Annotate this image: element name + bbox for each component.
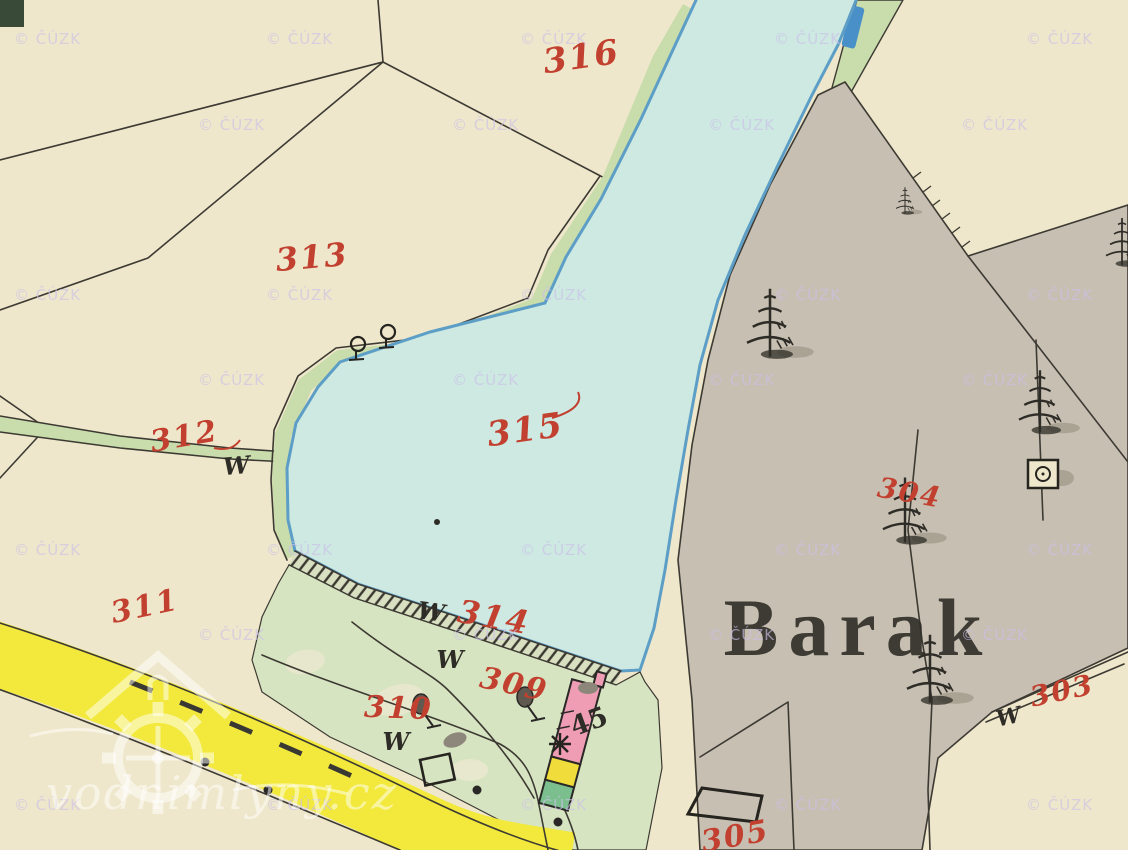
map-viewport[interactable]: Barak 316 313 312 311 315 314 309 310 30… <box>0 0 1128 850</box>
meadow-mark: W <box>383 727 412 756</box>
pond-depth-dot <box>434 519 440 525</box>
parcel-313: 313 <box>274 235 350 279</box>
place-name-label: Barak <box>724 582 993 673</box>
meadow-mark: W <box>437 645 466 674</box>
meadow-mark: W <box>222 450 253 481</box>
parcel-310: 310 <box>363 690 433 727</box>
mill-wheel-icon <box>549 733 571 755</box>
corner-mark <box>0 0 24 27</box>
